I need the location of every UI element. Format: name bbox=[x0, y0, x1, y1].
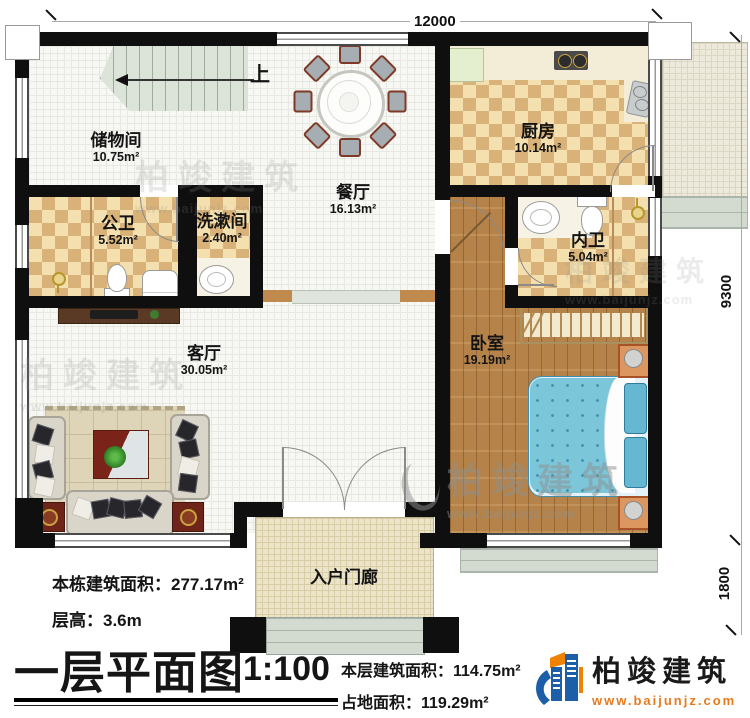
room-label-kitchen: 厨房 10.14m² bbox=[515, 122, 562, 155]
threshold-wood-right bbox=[400, 290, 435, 302]
fridge bbox=[448, 48, 484, 82]
dining-table-center bbox=[339, 92, 359, 112]
shower-head-icon bbox=[52, 272, 66, 286]
entry-door-leaf bbox=[282, 447, 284, 509]
lamp-icon bbox=[180, 509, 197, 526]
shower-head-icon bbox=[631, 206, 645, 220]
dimension-tick bbox=[45, 9, 56, 20]
room-label-washroom: 洗漱间 2.40m² bbox=[197, 212, 248, 245]
dimension-line-top bbox=[52, 21, 656, 22]
washroom-sink-basin-icon bbox=[207, 272, 226, 287]
title-rule bbox=[14, 698, 338, 702]
room-label-porch: 入户门廊 bbox=[310, 568, 378, 587]
stove-burner-icon bbox=[573, 54, 587, 68]
dimension-tick bbox=[651, 8, 662, 19]
terrace-step bbox=[658, 196, 748, 229]
dimension-line-right bbox=[741, 35, 742, 635]
table-lamp-icon bbox=[624, 349, 643, 368]
room-label-dining: 餐厅 16.13m² bbox=[330, 183, 377, 216]
dimension-top: 12000 bbox=[410, 13, 460, 30]
brand-website: www.baijunjz.com bbox=[592, 693, 736, 708]
watermark: 柏竣建筑 www.baijunjz.com bbox=[20, 348, 192, 414]
porch-pillar bbox=[423, 617, 459, 653]
door-leaf bbox=[518, 284, 554, 286]
side-steps bbox=[460, 548, 658, 573]
brand-logo-icon bbox=[534, 645, 588, 714]
watermark: 柏竣建筑 www.baijunjz.com bbox=[402, 452, 627, 521]
window bbox=[15, 225, 29, 268]
plant-icon bbox=[104, 446, 126, 468]
room-label-bedroom: 卧室 19.19m² bbox=[464, 334, 511, 367]
dimension-tick bbox=[729, 31, 740, 42]
stairs-up-label: 上 bbox=[250, 58, 270, 87]
brand-name: 柏竣建筑 bbox=[592, 648, 736, 690]
terrace-floor bbox=[662, 42, 748, 198]
wardrobe bbox=[520, 306, 648, 344]
dimension-extension-box bbox=[5, 25, 40, 60]
tv bbox=[90, 310, 138, 319]
page-title: 一层平面图 bbox=[14, 636, 244, 701]
window bbox=[55, 533, 230, 548]
bath-partition-line bbox=[90, 197, 92, 296]
watermark: 柏竣建筑 www.baijunjz.com bbox=[565, 250, 713, 307]
dining-chair bbox=[339, 45, 361, 64]
stairs-arrow-icon bbox=[115, 74, 128, 86]
dining-chair bbox=[294, 91, 313, 113]
shower-stem bbox=[57, 284, 59, 293]
room-label-public-bath: 公卫 5.52m² bbox=[98, 214, 138, 247]
brand-logo-text: 柏竣建筑 www.baijunjz.com bbox=[592, 648, 736, 708]
shower-stem bbox=[636, 198, 638, 207]
stat-floor-area: 本层建筑面积：114.75m² bbox=[341, 657, 521, 681]
toilet bbox=[107, 264, 127, 292]
room-label-storage: 储物间 10.75m² bbox=[91, 131, 142, 164]
lamp-icon bbox=[41, 509, 58, 526]
plant-icon bbox=[150, 310, 159, 319]
watermark-logo-icon bbox=[396, 458, 444, 515]
window bbox=[277, 32, 408, 46]
title-rule-thin bbox=[14, 705, 338, 706]
sofa-cushion bbox=[178, 473, 198, 493]
threshold-center bbox=[292, 290, 400, 304]
stat-building-area: 本栋建筑面积：277.17m² bbox=[52, 570, 244, 595]
stat-footprint-area: 占地面积：119.29m² bbox=[341, 689, 489, 713]
stairs-direction-line bbox=[128, 79, 254, 81]
stove-burner-icon bbox=[558, 54, 572, 68]
window bbox=[487, 533, 630, 548]
wall-bath-bottom bbox=[15, 296, 263, 308]
dimension-tick bbox=[729, 534, 740, 545]
dining-chair bbox=[339, 138, 361, 157]
bed-pillow bbox=[624, 437, 647, 488]
floor-plan-canvas: 上 bbox=[0, 0, 750, 718]
dining-chair bbox=[388, 91, 407, 113]
bed-pillow bbox=[624, 383, 647, 434]
dimension-right: 9300 bbox=[718, 271, 735, 312]
door-opening bbox=[435, 200, 450, 254]
door-opening bbox=[505, 248, 518, 285]
dimension-porch: 1800 bbox=[716, 563, 733, 604]
door-leaf bbox=[652, 146, 654, 191]
watermark: 柏竣建筑 www.baijunjz.com bbox=[135, 150, 307, 216]
sofa-seat bbox=[33, 475, 56, 498]
window bbox=[15, 78, 29, 158]
window bbox=[648, 198, 662, 256]
dimension-extension-box bbox=[648, 22, 692, 60]
wall-entry-pillar bbox=[234, 502, 247, 548]
dimension-tick bbox=[725, 624, 736, 635]
inner-bath-sink-basin-icon bbox=[530, 209, 552, 226]
stat-floor-height: 层高：3.6m bbox=[52, 606, 142, 631]
scale-label: 1:100 bbox=[243, 650, 330, 689]
